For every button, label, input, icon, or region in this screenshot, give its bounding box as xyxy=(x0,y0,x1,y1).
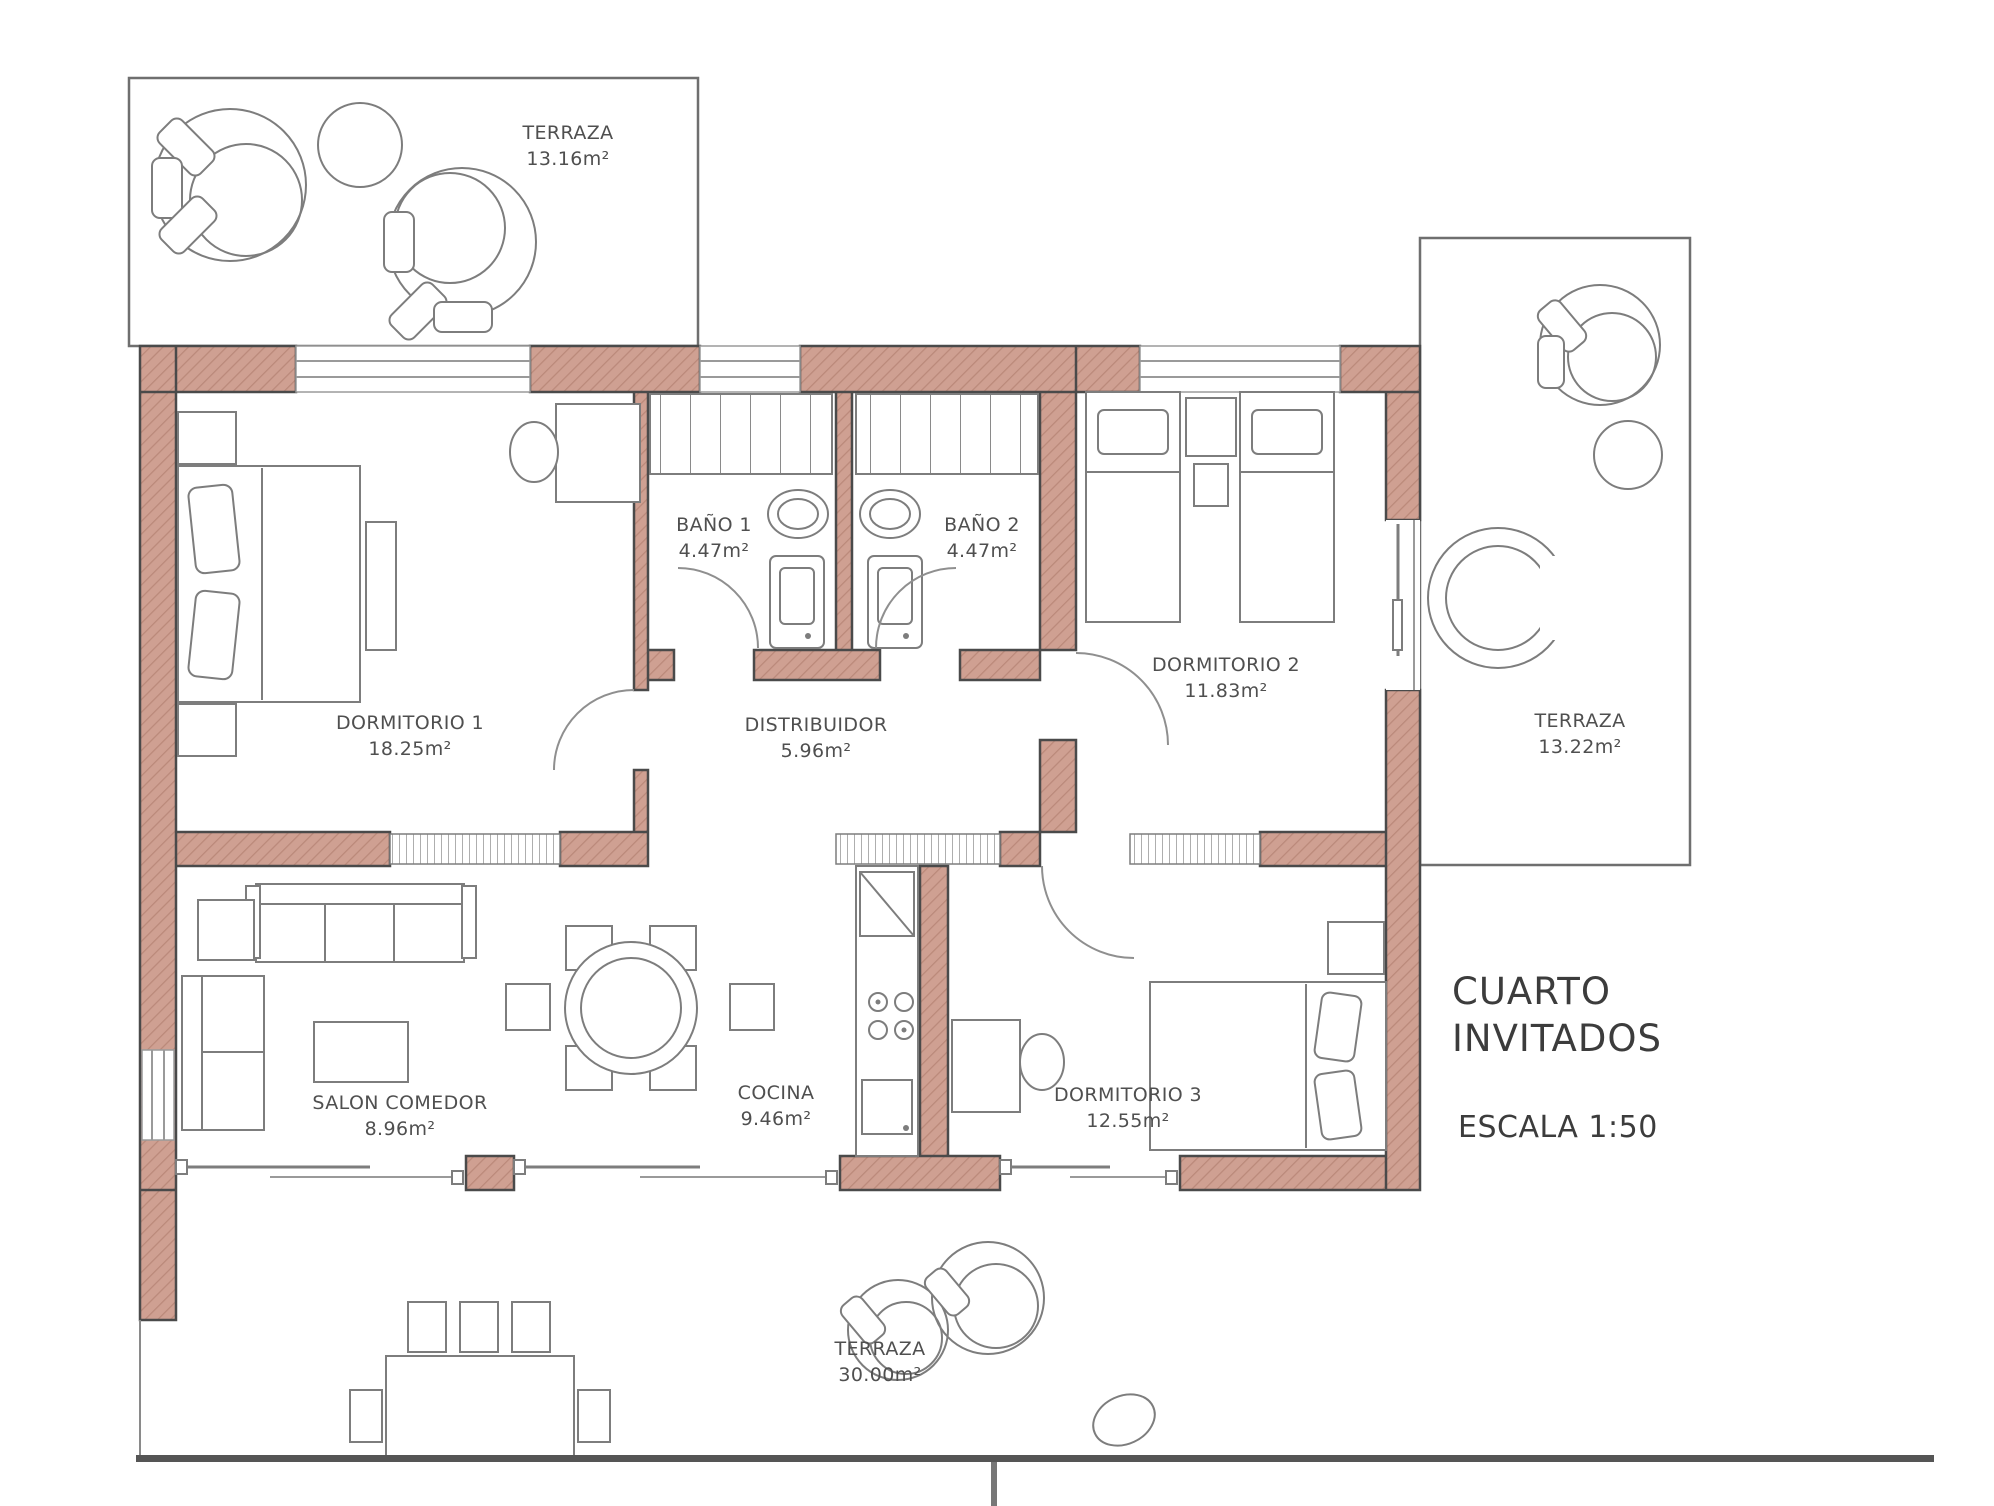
sliding-doors-bottom xyxy=(176,1160,1177,1184)
room-area: 18.25m² xyxy=(336,736,484,762)
room-area: 13.16m² xyxy=(522,146,613,172)
bano1-sink xyxy=(768,490,828,538)
dining-set xyxy=(506,926,774,1090)
room-area: 11.83m² xyxy=(1152,678,1300,704)
room-name: COCINA xyxy=(738,1080,815,1106)
window-dormitorio2 xyxy=(1140,346,1340,392)
room-area: 12.55m² xyxy=(1054,1108,1202,1134)
scale-label: ESCALA 1:50 xyxy=(1458,1110,1658,1145)
label-terraza-right: TERRAZA 13.22m² xyxy=(1534,708,1625,760)
bano2-sink xyxy=(860,490,920,538)
room-name: BAÑO 2 xyxy=(944,512,1020,538)
bano2-closet xyxy=(856,394,1038,474)
room-name: TERRAZA xyxy=(1534,708,1625,734)
room-area: 4.47m² xyxy=(676,538,752,564)
wall-vent-bands xyxy=(390,834,1260,864)
room-area: 30.00m² xyxy=(834,1362,925,1388)
kitchen-counter xyxy=(856,866,918,1156)
terrace-right-furniture xyxy=(1428,285,1662,668)
room-area: 9.46m² xyxy=(738,1106,815,1132)
room-area: 13.22m² xyxy=(1534,734,1625,760)
label-bano1: BAÑO 1 4.47m² xyxy=(676,512,752,564)
floor-plan-page: TERRAZA 13.16m² BAÑO 1 4.47m² BAÑO 2 4.4… xyxy=(0,0,1994,1506)
dormitorio2-furniture xyxy=(1086,392,1334,622)
label-distribuidor: DISTRIBUIDOR 5.96m² xyxy=(745,712,888,764)
sliding-door-dormitorio2-terrace xyxy=(1386,520,1420,690)
terrace-bottom-furniture xyxy=(350,1242,1163,1456)
room-name: TERRAZA xyxy=(834,1336,925,1362)
label-terraza-bottom: TERRAZA 30.00m² xyxy=(834,1336,925,1388)
unit-title-line2: INVITADOS xyxy=(1452,1015,1662,1062)
room-name: SALON COMEDOR xyxy=(312,1090,487,1116)
floor-plan-drawing xyxy=(0,0,1994,1506)
room-name: DISTRIBUIDOR xyxy=(745,712,888,738)
room-name: DORMITORIO 2 xyxy=(1152,652,1300,678)
unit-title-line1: CUARTO xyxy=(1452,968,1662,1015)
window-salon-left xyxy=(142,1050,174,1140)
dormitorio1-furniture xyxy=(178,404,640,756)
label-dormitorio3: DORMITORIO 3 12.55m² xyxy=(1054,1082,1202,1134)
bano2-toilet xyxy=(868,556,922,648)
room-name: BAÑO 1 xyxy=(676,512,752,538)
label-dormitorio1: DORMITORIO 1 18.25m² xyxy=(336,710,484,762)
label-dormitorio2: DORMITORIO 2 11.83m² xyxy=(1152,652,1300,704)
unit-title: CUARTO INVITADOS xyxy=(1452,968,1662,1062)
label-bano2: BAÑO 2 4.47m² xyxy=(944,512,1020,564)
room-name: DORMITORIO 1 xyxy=(336,710,484,736)
terrace-top-furniture xyxy=(152,103,536,343)
label-salon: SALON COMEDOR 8.96m² xyxy=(312,1090,487,1142)
window-banos xyxy=(700,346,800,392)
room-name: TERRAZA xyxy=(522,120,613,146)
room-name: DORMITORIO 3 xyxy=(1054,1082,1202,1108)
window-dormitorio1 xyxy=(296,346,530,392)
label-terraza-top: TERRAZA 13.16m² xyxy=(522,120,613,172)
room-area: 5.96m² xyxy=(745,738,888,764)
bano1-toilet xyxy=(770,556,824,648)
room-area: 8.96m² xyxy=(312,1116,487,1142)
room-area: 4.47m² xyxy=(944,538,1020,564)
bano1-closet xyxy=(650,394,832,474)
label-cocina: COCINA 9.46m² xyxy=(738,1080,815,1132)
